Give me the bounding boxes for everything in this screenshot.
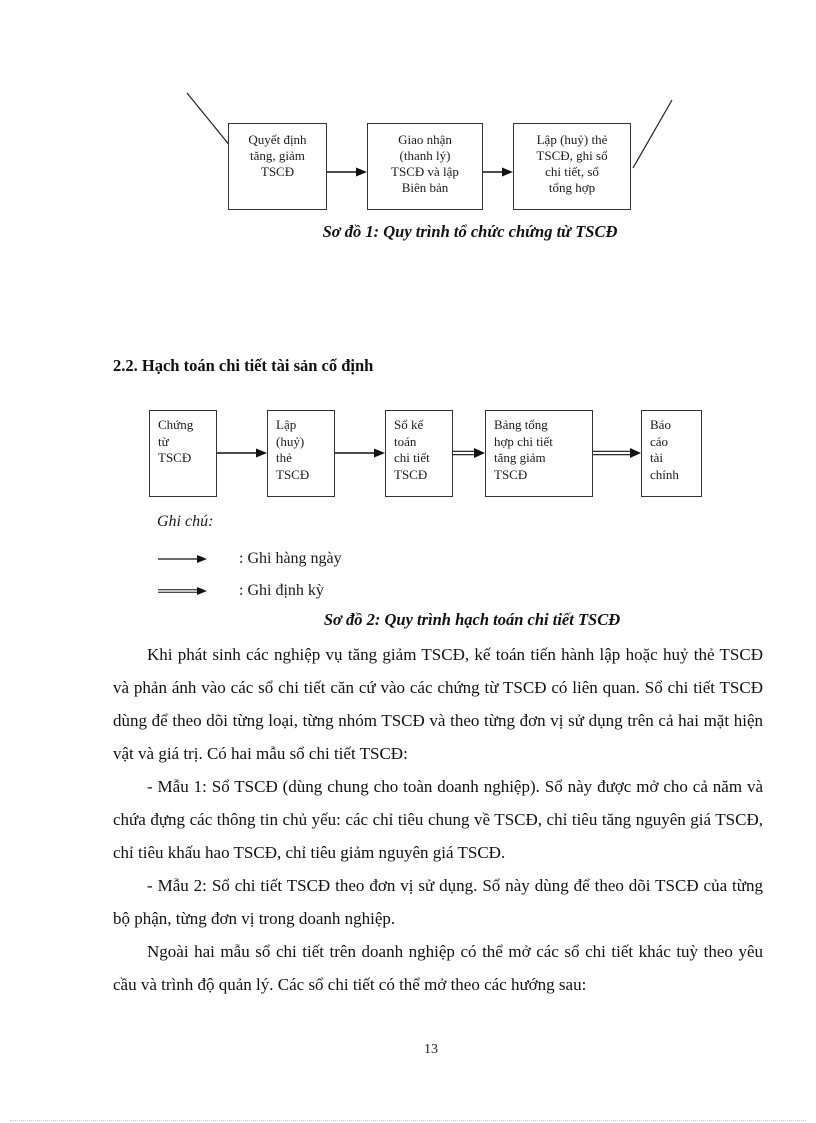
flow-box-label: Bảng tổng hợp chi tiết tăng giảm TSCĐ <box>494 417 588 483</box>
flow-box-label: Lập (huỷ) thẻ TSCĐ <box>276 417 330 483</box>
flow-box-giao-nhan: Giao nhận (thanh lý) TSCĐ và lập Biên bả… <box>367 123 483 210</box>
page-number: 13 <box>23 1042 816 1058</box>
flow-box-label: Giao nhận (thanh lý) TSCĐ và lập Biên bả… <box>368 132 482 196</box>
arrow-box2-box3 <box>483 168 513 177</box>
flow-box-lap-huy-the: Lập (huỷ) thẻ TSCĐ <box>267 410 335 497</box>
right-diagonal-line <box>633 100 672 168</box>
arrow-box1-box2 <box>327 168 367 177</box>
legend-item-daily: : Ghi hàng ngày <box>157 549 342 569</box>
periodic-arrow-icon <box>157 584 209 598</box>
flow-box-label: Báo cáo tài chính <box>650 417 697 483</box>
body-text: Khi phát sinh các nghiệp vụ tăng giảm TS… <box>113 638 763 1001</box>
flow-box-label: Lập (huỷ) thẻ TSCĐ, ghi sổ chi tiết, sổ … <box>514 132 630 196</box>
legend-title: Ghi chú: <box>157 513 213 531</box>
flow-box-bang-tong-hop: Bảng tổng hợp chi tiết tăng giảm TSCĐ <box>485 410 593 497</box>
double-arrow-bangtonghop-baocao <box>593 448 641 458</box>
flow-box-label: Sổ kế toán chi tiết TSCĐ <box>394 417 448 483</box>
legend-item-label: : Ghi định kỳ <box>239 582 324 600</box>
daily-arrow-icon <box>157 552 209 566</box>
paragraph: - Mẫu 2: Sổ chi tiết TSCĐ theo đơn vị sử… <box>113 869 763 935</box>
section-heading: 2.2. Hạch toán chi tiết tài sản cố định <box>113 356 373 376</box>
arrow-chungtu-lapthe <box>217 449 267 458</box>
flow-box-quyet-dinh: Quyết định tăng, giảm TSCĐ <box>228 123 327 210</box>
double-arrow-soketoan-bangtonghop <box>453 448 485 458</box>
flow-box-label: Chứng từ TSCĐ <box>158 417 212 467</box>
bottom-dotted-rule <box>10 1120 806 1121</box>
diagram2-caption: Sơ đồ 2: Quy trình hạch toán chi tiết TS… <box>64 610 816 630</box>
flow-box-label: Quyết định tăng, giảm TSCĐ <box>229 132 326 180</box>
flow-box-lap-the: Lập (huỷ) thẻ TSCĐ, ghi sổ chi tiết, sổ … <box>513 123 631 210</box>
arrow-lapthe-soketoan <box>335 449 385 458</box>
legend-item-periodic: : Ghi định kỳ <box>157 581 324 601</box>
flow-box-chung-tu: Chứng từ TSCĐ <box>149 410 217 497</box>
legend-item-label: : Ghi hàng ngày <box>239 550 342 568</box>
paragraph: - Mẫu 1: Sổ TSCĐ (dùng chung cho toàn do… <box>113 770 763 869</box>
paragraph: Ngoài hai mẫu sổ chi tiết trên doanh ngh… <box>113 935 763 1001</box>
flow-box-bao-cao: Báo cáo tài chính <box>641 410 702 497</box>
paragraph: Khi phát sinh các nghiệp vụ tăng giảm TS… <box>113 638 763 770</box>
flow-box-so-ke-toan: Sổ kế toán chi tiết TSCĐ <box>385 410 453 497</box>
diagram1-caption: Sơ đồ 1: Quy trình tổ chức chứng từ TSCĐ <box>62 222 816 242</box>
document-page: Quyết định tăng, giảm TSCĐ Giao nhận (th… <box>0 0 816 1123</box>
